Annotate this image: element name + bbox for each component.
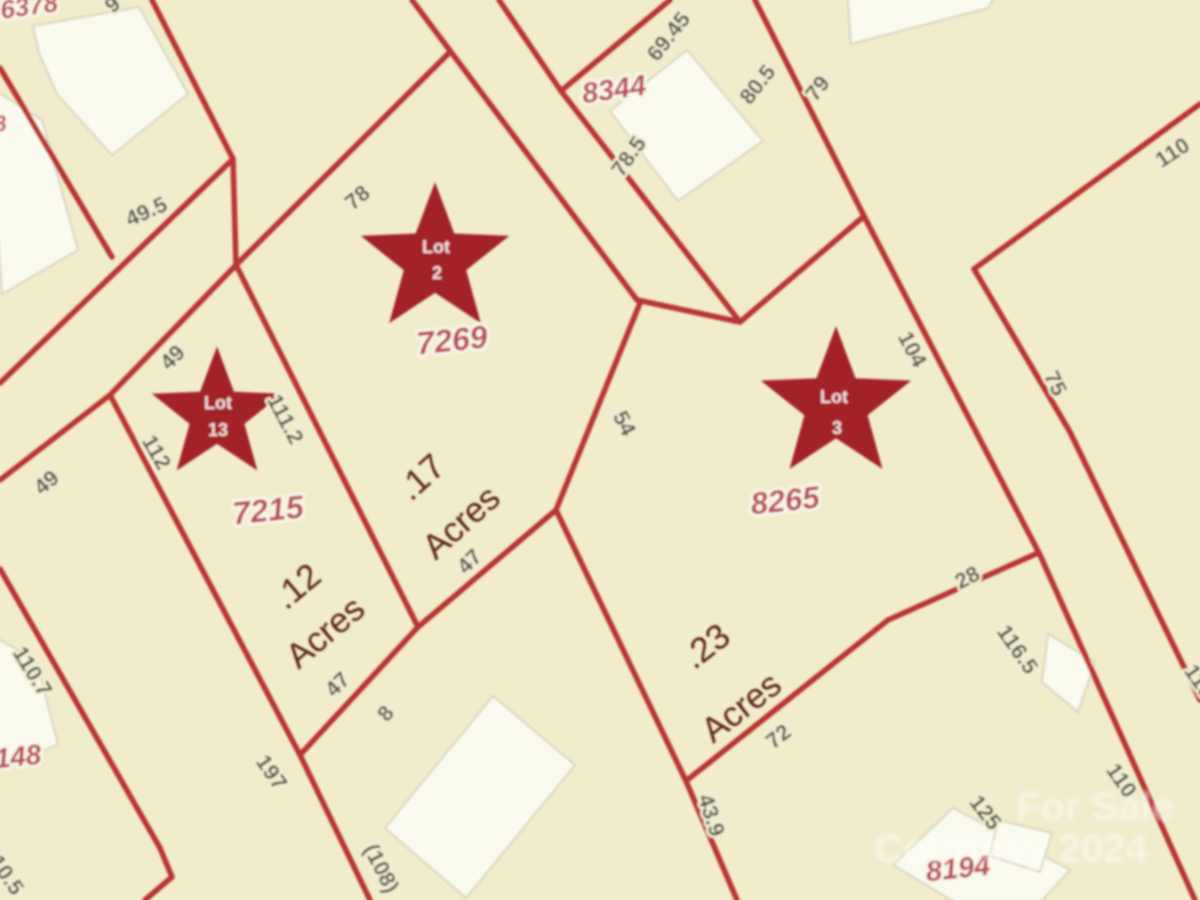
svg-text:For Sale: For Sale — [1016, 785, 1174, 829]
svg-text:2: 2 — [432, 263, 442, 283]
svg-text:8265: 8265 — [749, 479, 822, 521]
svg-text:7269: 7269 — [415, 318, 490, 361]
svg-text:Lot: Lot — [820, 387, 848, 407]
svg-text:Lot: Lot — [204, 393, 232, 413]
svg-text:3: 3 — [832, 418, 842, 438]
svg-text:Lot: Lot — [422, 237, 450, 257]
svg-text:13: 13 — [208, 420, 228, 440]
svg-text:7215: 7215 — [231, 488, 307, 531]
svg-text:Courtesy 2024: Courtesy 2024 — [874, 827, 1148, 871]
svg-text:148: 148 — [0, 739, 43, 775]
